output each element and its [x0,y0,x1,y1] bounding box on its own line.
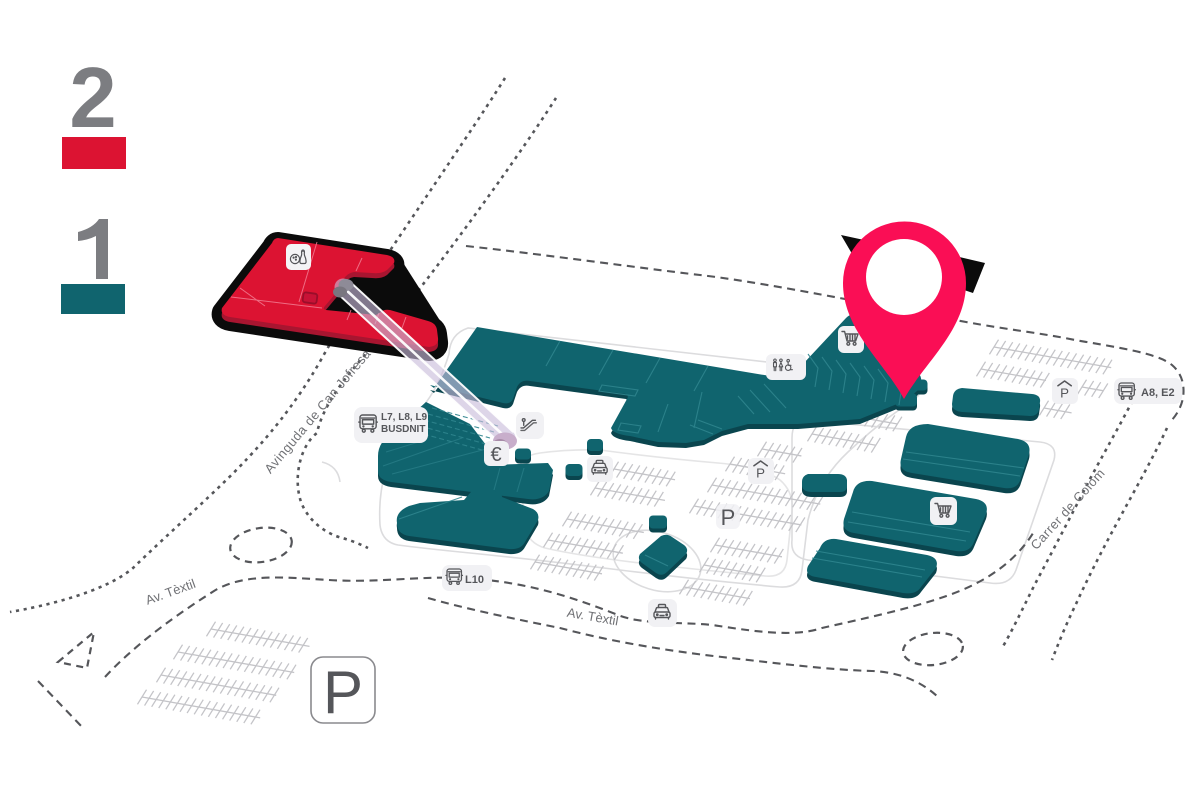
svg-text:€: € [490,444,501,466]
svg-text:L10: L10 [465,574,484,586]
svg-text:P: P [756,466,765,481]
svg-text:P: P [323,659,363,726]
svg-text:P: P [1060,386,1069,401]
svg-text:2: 2 [69,51,116,146]
svg-text:P: P [721,505,736,530]
svg-text:BUSDNIT: BUSDNIT [381,424,425,435]
svg-text:A8, E2: A8, E2 [1141,387,1175,399]
svg-text:L7, L8, L9: L7, L8, L9 [381,412,428,423]
